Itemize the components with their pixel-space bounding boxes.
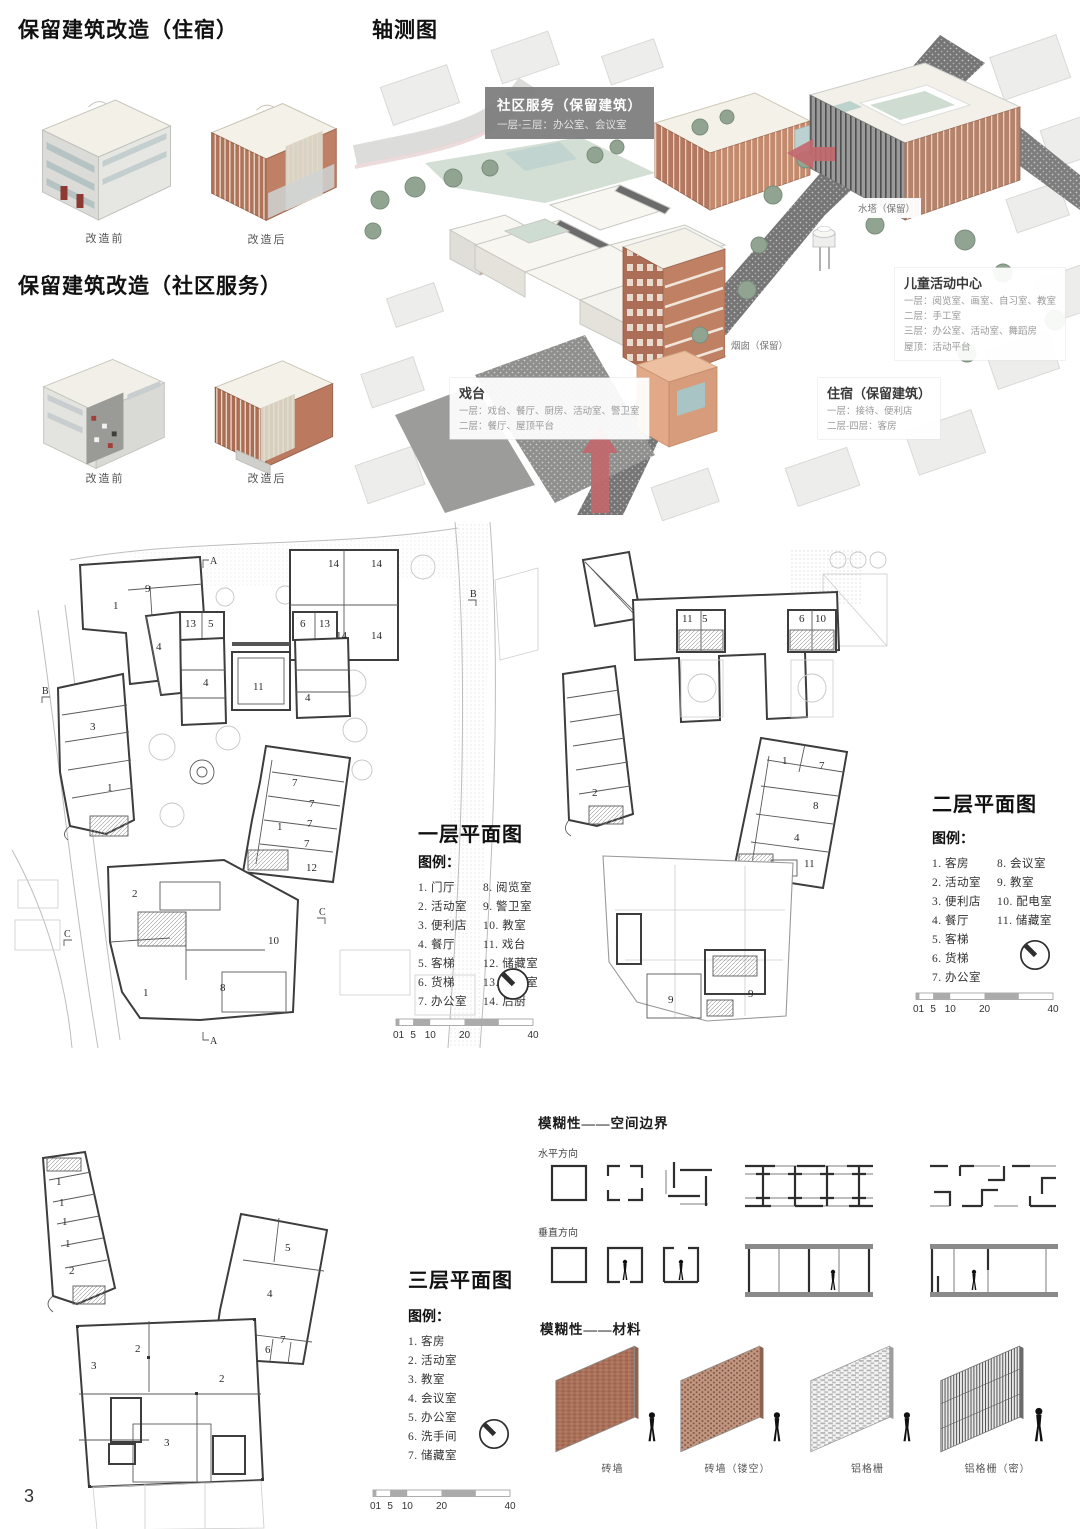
legend-item: 7. 办公室	[932, 969, 981, 988]
svg-text:10: 10	[945, 1004, 957, 1015]
svg-text:9: 9	[145, 583, 151, 595]
svg-text:4: 4	[156, 641, 162, 653]
axon-label-lodging: 住宿（保留建筑） 一层：接待、便利店 二层-四层：客房	[818, 378, 940, 439]
diagram-broken-walls	[930, 1166, 1056, 1206]
reno-lodging-before-image	[28, 82, 183, 232]
material-caption-grille: 铝格栅	[805, 1460, 930, 1475]
axon-label-children: 儿童活动中心 一层：阅览室、画室、自习室、教室 二层：手工室 三层：办公室、活动…	[895, 268, 1065, 360]
legend-item: 8. 阅览室	[483, 879, 538, 898]
material-aluminum-grille-dense	[935, 1338, 1060, 1456]
axon-label-chimney: 烟囱（保留）	[725, 335, 794, 355]
space-boundary-title: 模糊性——空间边界	[538, 1112, 669, 1132]
svg-text:11: 11	[253, 681, 264, 693]
svg-text:7: 7	[819, 760, 825, 772]
plan3-title: 三层平面图	[408, 1264, 513, 1293]
diagram-closed-square	[552, 1166, 586, 1200]
svg-text:20: 20	[459, 1030, 471, 1041]
svg-text:7: 7	[307, 818, 313, 830]
svg-text:1: 1	[113, 600, 119, 612]
axon-label-community-sub: 一层-三层：办公室、会议室	[497, 117, 642, 132]
poster-page: 保留建筑改造（住宿）	[0, 0, 1080, 1529]
diagram-partial-wall-section	[930, 1244, 1058, 1297]
svg-text:3: 3	[90, 721, 96, 733]
plan2-buildings	[563, 548, 887, 1021]
reno-community-after-image	[198, 340, 348, 482]
svg-text:5: 5	[208, 618, 214, 630]
building-after-brick-2	[215, 361, 332, 475]
caption-before-1: 改造前	[60, 230, 150, 246]
legend-item: 2. 活动室	[932, 874, 981, 893]
legend-item: 3. 教室	[408, 1371, 457, 1390]
plan1-scale-bar: 01 5 10 20 40	[395, 1016, 545, 1042]
building-before-gray	[43, 100, 171, 220]
legend-item: 4. 餐厅	[932, 912, 981, 931]
svg-text:5: 5	[285, 1242, 291, 1254]
plan3-drawing: 1 1 1 1 2 5 4 7 6 2 3 2 3	[15, 1140, 375, 1529]
legend-item: 4. 会议室	[408, 1390, 457, 1409]
caption-after-1: 改造后	[222, 231, 312, 247]
legend-item: 3. 便利店	[932, 893, 981, 912]
svg-text:1: 1	[277, 821, 283, 833]
building-before-white	[44, 359, 165, 468]
legend-item: 3. 便利店	[418, 917, 467, 936]
legend-item: 1. 门厅	[418, 879, 467, 898]
svg-text:9: 9	[748, 988, 754, 1000]
svg-text:01: 01	[370, 1501, 382, 1512]
reno-lodging-after-image	[198, 86, 348, 232]
legend-item: 1. 客房	[408, 1333, 457, 1352]
axon-label-stage: 戏台 一层：戏台、餐厅、厨房、活动室、警卫室 二层：餐厅、屋顶平台	[450, 378, 649, 439]
material-aluminum-grille	[805, 1338, 930, 1456]
svg-text:5: 5	[387, 1501, 393, 1512]
axon-label-water-tower: 水塔（保留）	[852, 198, 921, 218]
svg-text:7: 7	[309, 798, 315, 810]
building-after-brick	[212, 104, 337, 221]
legend-item: 9. 警卫室	[483, 898, 538, 917]
svg-text:8: 8	[220, 982, 226, 994]
section-title-reno-lodging: 保留建筑改造（住宿）	[18, 14, 238, 44]
legend-item: 6. 货梯	[418, 974, 467, 993]
plan2-legend-title: 图例：	[932, 828, 1052, 848]
axon-label-stage-title: 戏台	[459, 383, 640, 402]
svg-text:8: 8	[813, 800, 819, 812]
svg-text:20: 20	[979, 1004, 991, 1015]
legend-item: 7. 储藏室	[408, 1447, 457, 1466]
legend-item: 6. 洗手间	[408, 1428, 457, 1447]
plan1-title: 一层平面图	[418, 818, 523, 847]
axon-label-community: 社区服务（保留建筑） 一层-三层：办公室、会议室	[485, 87, 654, 139]
diagram-two-bay-section	[745, 1244, 873, 1297]
diagram-open-bottom-section	[608, 1248, 642, 1282]
svg-text:13: 13	[185, 618, 197, 630]
legend-item: 7. 办公室	[418, 993, 467, 1012]
svg-text:11: 11	[804, 858, 815, 870]
svg-text:1: 1	[56, 1176, 62, 1188]
diagram-closed-section	[552, 1248, 586, 1282]
svg-text:2: 2	[132, 888, 138, 900]
plan1-legend-title: 图例：	[418, 852, 538, 872]
svg-text:40: 40	[504, 1501, 516, 1512]
svg-text:2: 2	[592, 787, 598, 799]
legend-item: 11. 戏台	[483, 936, 538, 955]
svg-text:20: 20	[436, 1501, 448, 1512]
plan3-legend-title: 图例：	[408, 1306, 457, 1326]
legend-item: 5. 客梯	[418, 955, 467, 974]
svg-text:2: 2	[219, 1373, 225, 1385]
diagram-column-modules	[745, 1166, 873, 1206]
plan3-north-arrow-icon	[477, 1417, 511, 1451]
svg-text:7: 7	[280, 1334, 286, 1346]
legend-item: 11. 储藏室	[997, 912, 1052, 931]
axon-label-lodging-title: 住宿（保留建筑）	[827, 383, 931, 402]
water-tower	[813, 226, 835, 271]
legend-item: 5. 办公室	[408, 1409, 457, 1428]
diagram-gapped-square	[608, 1166, 642, 1200]
material-samples: 砖墙 砖墙（镂空） 铝格栅 铝格栅（密）	[540, 1338, 1080, 1483]
material-caption-grille-dense: 铝格栅（密）	[935, 1460, 1060, 1475]
lodging-line-1: 一层：接待、便利店	[827, 404, 931, 419]
legend-item: 10. 教室	[483, 917, 538, 936]
svg-text:C: C	[319, 907, 326, 918]
svg-text:4: 4	[203, 677, 209, 689]
svg-text:14: 14	[336, 630, 348, 642]
legend-item: 5. 客梯	[932, 931, 981, 950]
svg-text:11: 11	[682, 613, 693, 625]
svg-text:01: 01	[913, 1004, 925, 1015]
caption-after-2: 改造后	[222, 470, 312, 486]
svg-text:1: 1	[62, 1216, 68, 1228]
stage-line-2: 二层：餐厅、屋顶平台	[459, 419, 640, 434]
svg-text:40: 40	[527, 1030, 539, 1041]
legend-item: 4. 餐厅	[418, 936, 467, 955]
svg-text:A: A	[210, 556, 218, 567]
legend-item: 10. 配电室	[997, 893, 1052, 912]
svg-text:6: 6	[799, 613, 805, 625]
svg-text:10: 10	[268, 935, 280, 947]
svg-text:1: 1	[107, 782, 113, 794]
svg-text:10: 10	[402, 1501, 414, 1512]
boundary-diagrams-vertical	[540, 1238, 1070, 1306]
legend-item: 2. 活动室	[408, 1352, 457, 1371]
stage-orange-building	[637, 351, 717, 447]
svg-text:10: 10	[815, 613, 827, 625]
legend-item: 2. 活动室	[418, 898, 467, 917]
axon-view: 社区服务（保留建筑） 一层-三层：办公室、会议室 水塔（保留） 烟囱（保留） 儿…	[355, 35, 1080, 515]
svg-text:B: B	[470, 589, 477, 600]
svg-text:1: 1	[65, 1238, 71, 1250]
plan2-scale-bar: 01 5 10 20 40	[915, 990, 1065, 1016]
legend-item: 6. 货梯	[932, 950, 981, 969]
material-caption-brick: 砖墙	[550, 1460, 675, 1475]
children-line-3: 三层：办公室、活动室、舞蹈房	[904, 324, 1056, 339]
svg-text:4: 4	[794, 832, 800, 844]
children-line-2: 二层：手工室	[904, 309, 1056, 324]
svg-text:3: 3	[91, 1360, 97, 1372]
svg-text:5: 5	[410, 1030, 416, 1041]
material-caption-brick-perforated: 砖墙（镂空）	[675, 1460, 800, 1475]
plan3-scale-bar: 01 5 10 20 40	[372, 1487, 522, 1513]
svg-text:B: B	[42, 686, 49, 697]
plan2-drawing: 2 11 5 6 10 1 7 8 4 11 9 9	[555, 530, 905, 1040]
legend-item: 8. 会议室	[997, 855, 1052, 874]
legend-item: 1. 客房	[932, 855, 981, 874]
reno-community-before-image	[28, 338, 178, 484]
svg-text:2: 2	[135, 1343, 141, 1355]
svg-text:14: 14	[328, 558, 340, 570]
svg-text:40: 40	[1047, 1004, 1059, 1015]
svg-text:1: 1	[782, 755, 788, 767]
material-brick-perforated	[675, 1338, 800, 1456]
svg-text:9: 9	[668, 994, 674, 1006]
svg-text:14: 14	[371, 630, 383, 642]
svg-text:2: 2	[69, 1265, 75, 1277]
svg-text:4: 4	[305, 692, 311, 704]
svg-text:5: 5	[930, 1004, 936, 1015]
vertical-direction-label: 垂直方向	[538, 1224, 578, 1239]
plan3-legend: 图例： 1. 客房 2. 活动室 3. 教室 4. 会议室 5. 办公室 6. …	[408, 1306, 457, 1466]
legend-item: 9. 教室	[997, 874, 1052, 893]
svg-text:4: 4	[267, 1288, 273, 1300]
svg-text:7: 7	[292, 777, 298, 789]
children-line-4: 屋顶：活动平台	[904, 340, 1056, 355]
svg-text:10: 10	[425, 1030, 437, 1041]
diagram-open-top-section	[664, 1248, 698, 1282]
section-title-reno-community: 保留建筑改造（社区服务）	[18, 270, 282, 300]
svg-text:1: 1	[59, 1197, 65, 1209]
svg-text:A: A	[210, 1036, 218, 1047]
svg-text:3: 3	[164, 1437, 170, 1449]
svg-text:C: C	[64, 929, 71, 940]
material-brick-wall	[550, 1338, 675, 1456]
svg-text:1: 1	[143, 987, 149, 999]
boundary-diagrams-horizontal	[540, 1158, 1070, 1216]
svg-text:13: 13	[319, 618, 331, 630]
axon-label-community-title: 社区服务（保留建筑）	[497, 94, 642, 114]
plan2-title: 二层平面图	[932, 788, 1037, 817]
children-line-1: 一层：阅览室、画室、自习室、教室	[904, 294, 1056, 309]
svg-text:7: 7	[304, 838, 310, 850]
caption-before-2: 改造前	[60, 470, 150, 486]
svg-text:14: 14	[371, 558, 383, 570]
svg-text:5: 5	[702, 613, 708, 625]
page-number: 3	[24, 1486, 34, 1507]
material-title: 模糊性——材料	[540, 1318, 642, 1338]
plan2-north-arrow-icon	[1018, 938, 1052, 972]
plan1-north-arrow-icon	[495, 966, 531, 1002]
svg-text:6: 6	[265, 1344, 271, 1356]
lodging-line-2: 二层-四层：客房	[827, 419, 931, 434]
svg-text:01: 01	[393, 1030, 405, 1041]
stage-line-1: 一层：戏台、餐厅、厨房、活动室、警卫室	[459, 404, 640, 419]
axon-label-children-title: 儿童活动中心	[904, 273, 1056, 292]
diagram-pinwheel-walls	[666, 1162, 712, 1206]
svg-text:12: 12	[306, 862, 317, 874]
svg-text:6: 6	[300, 618, 306, 630]
